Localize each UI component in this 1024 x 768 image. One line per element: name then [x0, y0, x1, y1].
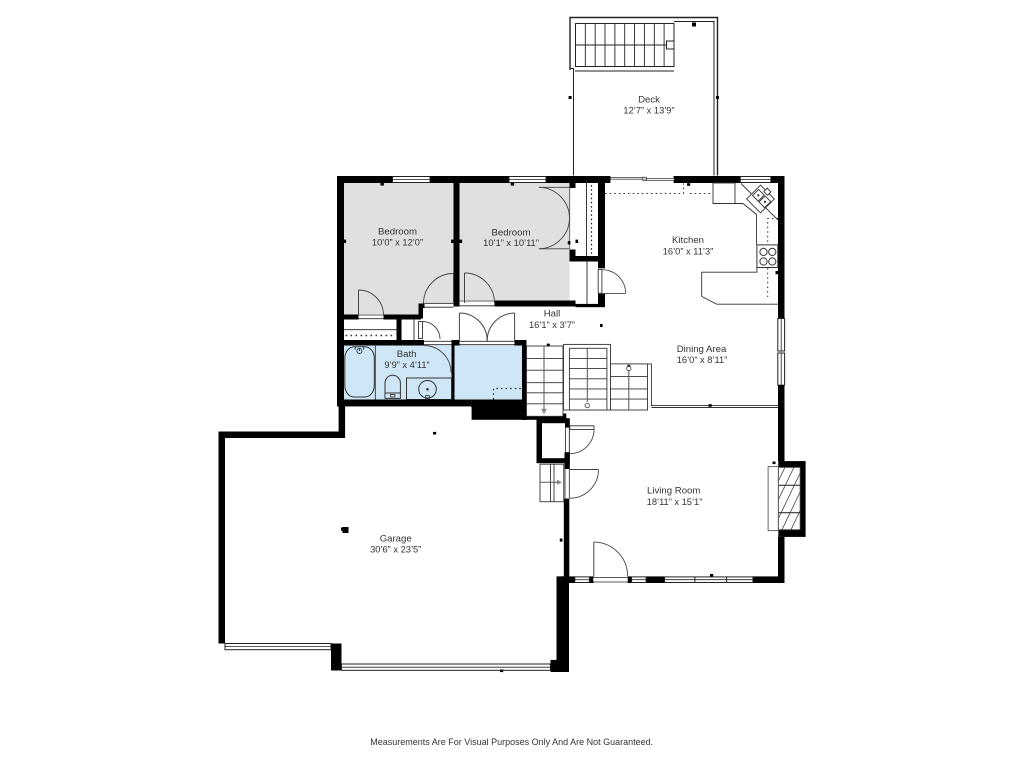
- svg-text:30’6” x 23’5”: 30’6” x 23’5”: [370, 545, 421, 555]
- svg-text:Measurements Are For Visual Pu: Measurements Are For Visual Purposes Onl…: [370, 737, 653, 747]
- svg-text:Living Room: Living Room: [647, 486, 700, 497]
- svg-text:16’0” x 11’3”: 16’0” x 11’3”: [663, 246, 713, 256]
- svg-text:Dining Area: Dining Area: [677, 344, 727, 355]
- svg-text:Hall: Hall: [544, 309, 561, 320]
- svg-text:Kitchen: Kitchen: [672, 235, 704, 246]
- svg-text:Bedroom: Bedroom: [378, 227, 417, 238]
- svg-text:12’7” x 13’9”: 12’7” x 13’9”: [623, 106, 674, 116]
- svg-text:Deck: Deck: [638, 95, 660, 106]
- svg-text:16’0” x 8’11”: 16’0” x 8’11”: [677, 355, 727, 365]
- svg-text:10’0” x 12’0”: 10’0” x 12’0”: [372, 237, 423, 247]
- svg-text:10’1” x 10’11”: 10’1” x 10’11”: [483, 238, 539, 248]
- svg-text:Bath: Bath: [397, 349, 417, 360]
- svg-text:9’9” x 4’11”: 9’9” x 4’11”: [384, 360, 429, 370]
- svg-text:Garage: Garage: [380, 533, 412, 544]
- svg-text:16’1” x 3’7”: 16’1” x 3’7”: [529, 320, 575, 330]
- svg-text:18’11” x 15’1”: 18’11” x 15’1”: [647, 497, 703, 507]
